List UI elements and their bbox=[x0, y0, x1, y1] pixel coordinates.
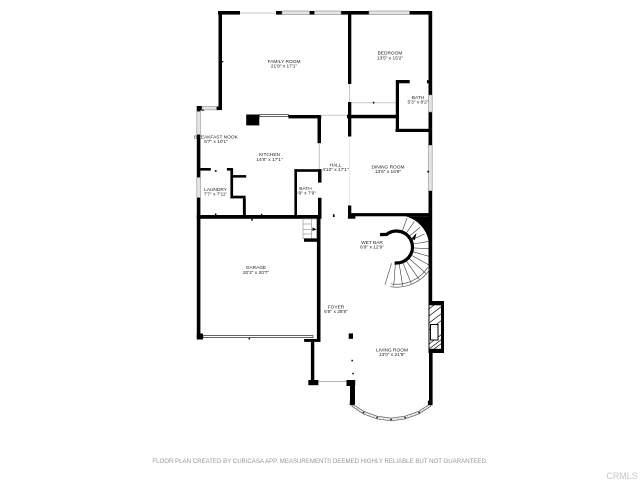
svg-text:6'9" x 12'9": 6'9" x 12'9" bbox=[360, 245, 384, 251]
svg-text:6'9" x 7'9": 6'9" x 7'9" bbox=[295, 191, 316, 197]
svg-text:6'8" x 28'8": 6'8" x 28'8" bbox=[324, 309, 348, 315]
svg-text:20'2" x 20'7": 20'2" x 20'7" bbox=[243, 270, 270, 276]
svg-text:13'5" x 15'2": 13'5" x 15'2" bbox=[377, 55, 404, 61]
svg-text:14'8" x 17'1": 14'8" x 17'1" bbox=[256, 157, 283, 163]
svg-text:13'0" x 21'8": 13'0" x 21'8" bbox=[379, 352, 406, 358]
svg-text:CRMLS: CRMLS bbox=[606, 471, 637, 480]
svg-text:4'10" x 17'1": 4'10" x 17'1" bbox=[322, 167, 349, 173]
svg-text:5'7" x 10'1": 5'7" x 10'1" bbox=[204, 139, 228, 145]
svg-text:21'9" x 17'1": 21'9" x 17'1" bbox=[271, 64, 298, 70]
svg-text:7'7" x 7'11": 7'7" x 7'11" bbox=[204, 192, 228, 198]
svg-text:5'3" x 8'2": 5'3" x 8'2" bbox=[408, 100, 429, 106]
svg-text:13'6" x 16'9": 13'6" x 16'9" bbox=[375, 169, 402, 175]
svg-text:FLOOR PLAN CREATED BY CUBICASA: FLOOR PLAN CREATED BY CUBICASA APP. MEAS… bbox=[152, 458, 487, 465]
